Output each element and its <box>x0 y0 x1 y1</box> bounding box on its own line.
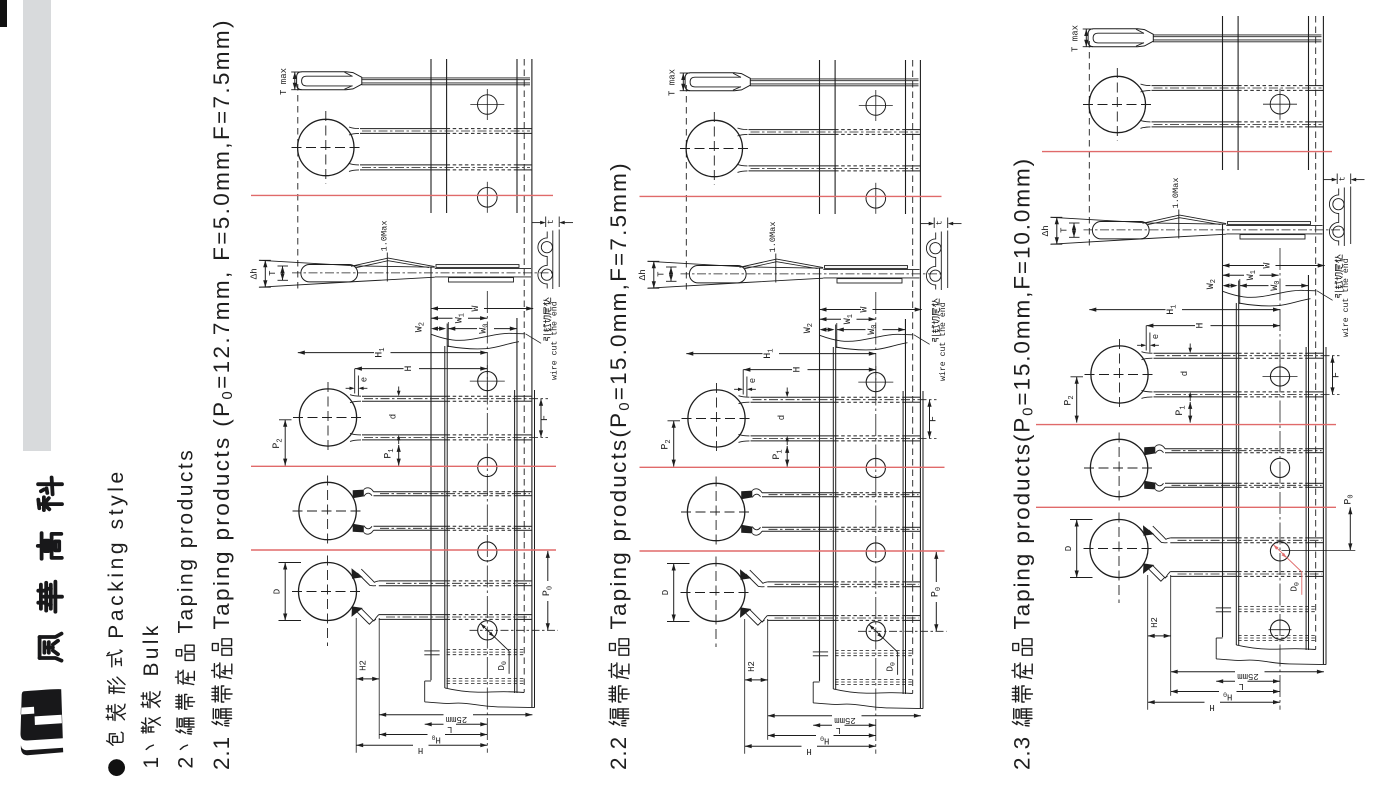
svg-text:D: D <box>272 589 282 594</box>
svg-text:H: H <box>792 367 803 373</box>
svg-text:H2: H2 <box>747 661 757 672</box>
svg-text:H: H <box>418 745 423 755</box>
svg-text:1.0Max: 1.0Max <box>768 222 778 253</box>
svg-text:T max: T max <box>279 68 289 95</box>
svg-text:25mm: 25mm <box>1237 671 1259 681</box>
svg-text:2.2: 2.2 <box>606 736 631 770</box>
svg-text:e: e <box>1151 334 1161 339</box>
svg-text:Taping products (P0=12.7mm, F: Taping products (P0=12.7mm, F=5.0mm,F=7.… <box>209 18 236 629</box>
svg-text:W: W <box>859 306 870 312</box>
svg-text:2.1: 2.1 <box>209 736 234 770</box>
svg-text:e: e <box>748 378 758 383</box>
svg-text:W: W <box>1262 262 1273 268</box>
svg-text:L: L <box>1239 681 1244 691</box>
svg-text:L: L <box>447 724 452 734</box>
svg-text:d: d <box>1180 371 1190 376</box>
svg-text:W: W <box>470 305 481 311</box>
svg-text:e: e <box>360 377 370 382</box>
svg-text:H: H <box>403 366 414 372</box>
svg-text:1: 1 <box>140 757 163 769</box>
svg-text:t: t <box>1338 176 1347 181</box>
svg-text:D: D <box>661 590 671 595</box>
svg-text:H: H <box>1195 323 1206 329</box>
svg-text:t: t <box>935 220 944 225</box>
svg-text:2.3: 2.3 <box>1010 736 1035 770</box>
svg-text:Packing style: Packing style <box>105 468 128 639</box>
svg-text:T max: T max <box>668 69 678 96</box>
svg-text:D: D <box>1064 546 1074 551</box>
svg-text:F: F <box>539 415 550 421</box>
svg-text:d: d <box>777 415 787 420</box>
svg-text:25mm: 25mm <box>834 715 856 725</box>
svg-text:F: F <box>927 416 938 422</box>
svg-text:wire cut the end: wire cut the end <box>938 302 948 381</box>
svg-text:H: H <box>806 746 811 756</box>
svg-text:25mm: 25mm <box>446 714 468 724</box>
svg-text:L: L <box>836 725 841 735</box>
svg-text:Bulk: Bulk <box>140 622 163 676</box>
svg-text:T max: T max <box>1071 25 1081 52</box>
svg-text:wire cut the end: wire cut the end <box>550 301 560 380</box>
svg-text:T: T <box>657 271 667 277</box>
svg-text:Taping products(P0=15.0mm,F=7.: Taping products(P0=15.0mm,F=7.5mm) <box>606 161 633 629</box>
svg-text:T: T <box>268 270 278 276</box>
svg-text:Taping products(P0=15.0mm,F=10: Taping products(P0=15.0mm,F=10.0mm) <box>1010 157 1037 630</box>
svg-text:1.0Max: 1.0Max <box>1171 178 1181 209</box>
svg-text:T: T <box>1060 227 1070 233</box>
svg-text:d: d <box>389 414 399 419</box>
svg-text:Taping products: Taping products <box>174 448 197 634</box>
svg-text:wire cut the end: wire cut the end <box>1341 258 1351 337</box>
svg-text:Δh: Δh <box>638 269 648 280</box>
svg-text:F: F <box>1330 372 1341 378</box>
svg-text:1.0Max: 1.0Max <box>379 221 389 252</box>
svg-text:t: t <box>547 219 556 224</box>
svg-text:H2: H2 <box>358 660 368 671</box>
svg-text:H2: H2 <box>1150 617 1160 628</box>
svg-text:Δh: Δh <box>1041 225 1051 236</box>
svg-text:Δh: Δh <box>250 268 260 279</box>
svg-text:2: 2 <box>174 757 197 769</box>
svg-text:H: H <box>1209 702 1214 712</box>
